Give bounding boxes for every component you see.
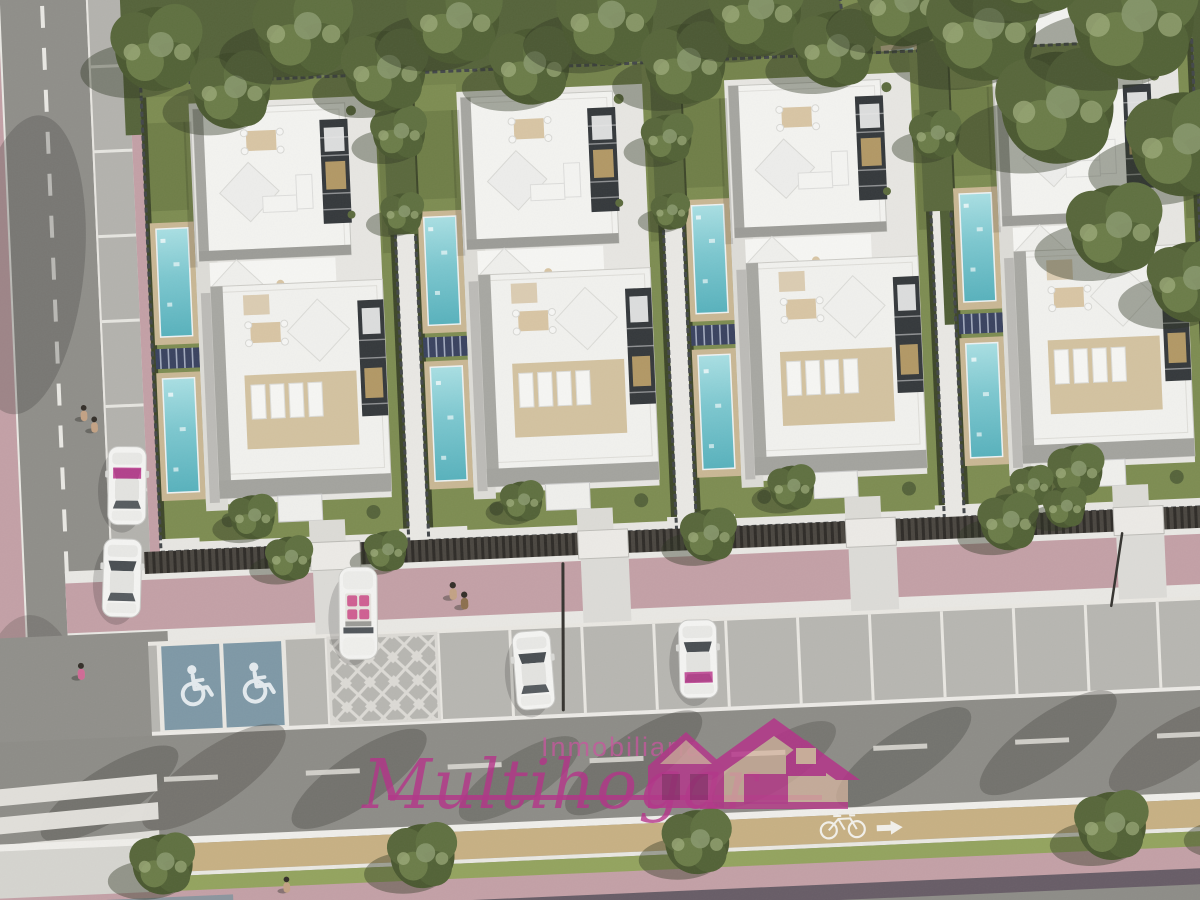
aerial-development-render: Inmobiliaria Multihogar: [0, 0, 1200, 900]
scene-svg: Inmobiliaria Multihogar: [0, 0, 1200, 900]
